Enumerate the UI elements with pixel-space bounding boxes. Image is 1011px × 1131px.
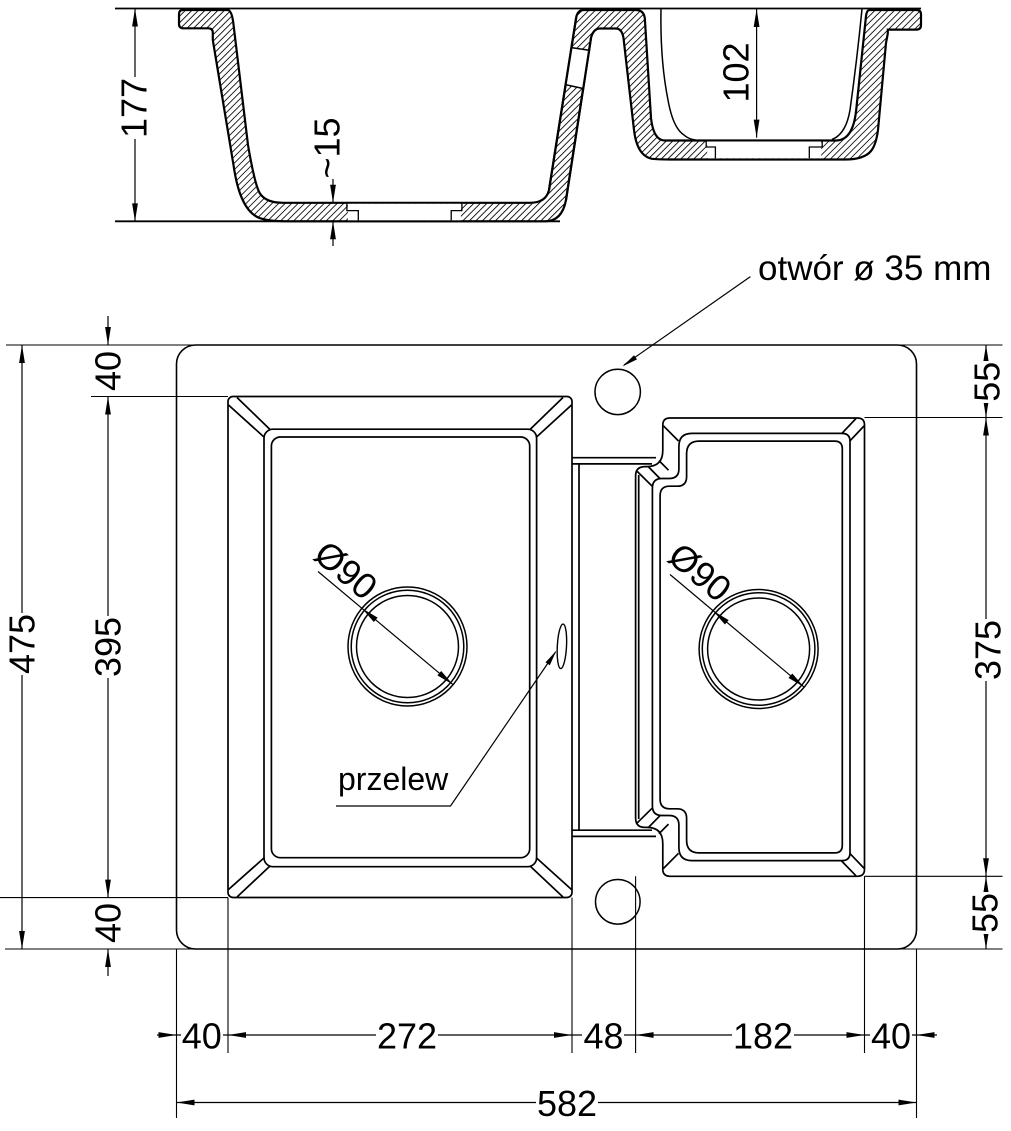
svg-text:40: 40 [182, 1016, 222, 1057]
svg-text:582: 582 [537, 1083, 597, 1124]
svg-text:102: 102 [716, 42, 757, 102]
svg-text:177: 177 [114, 78, 155, 138]
svg-text:~15: ~15 [307, 117, 348, 178]
svg-text:przelew: przelew [338, 761, 449, 797]
svg-text:182: 182 [733, 1016, 793, 1057]
svg-text:40: 40 [88, 351, 129, 391]
svg-text:55: 55 [965, 893, 1006, 933]
svg-text:40: 40 [88, 903, 129, 943]
svg-text:48: 48 [583, 1016, 623, 1057]
svg-text:475: 475 [2, 614, 43, 674]
svg-text:40: 40 [871, 1016, 911, 1057]
svg-text:375: 375 [968, 620, 1009, 680]
svg-text:otwór ø 35 mm: otwór ø 35 mm [758, 249, 991, 288]
svg-text:55: 55 [967, 362, 1008, 402]
svg-text:272: 272 [377, 1016, 437, 1057]
svg-text:395: 395 [88, 617, 129, 677]
